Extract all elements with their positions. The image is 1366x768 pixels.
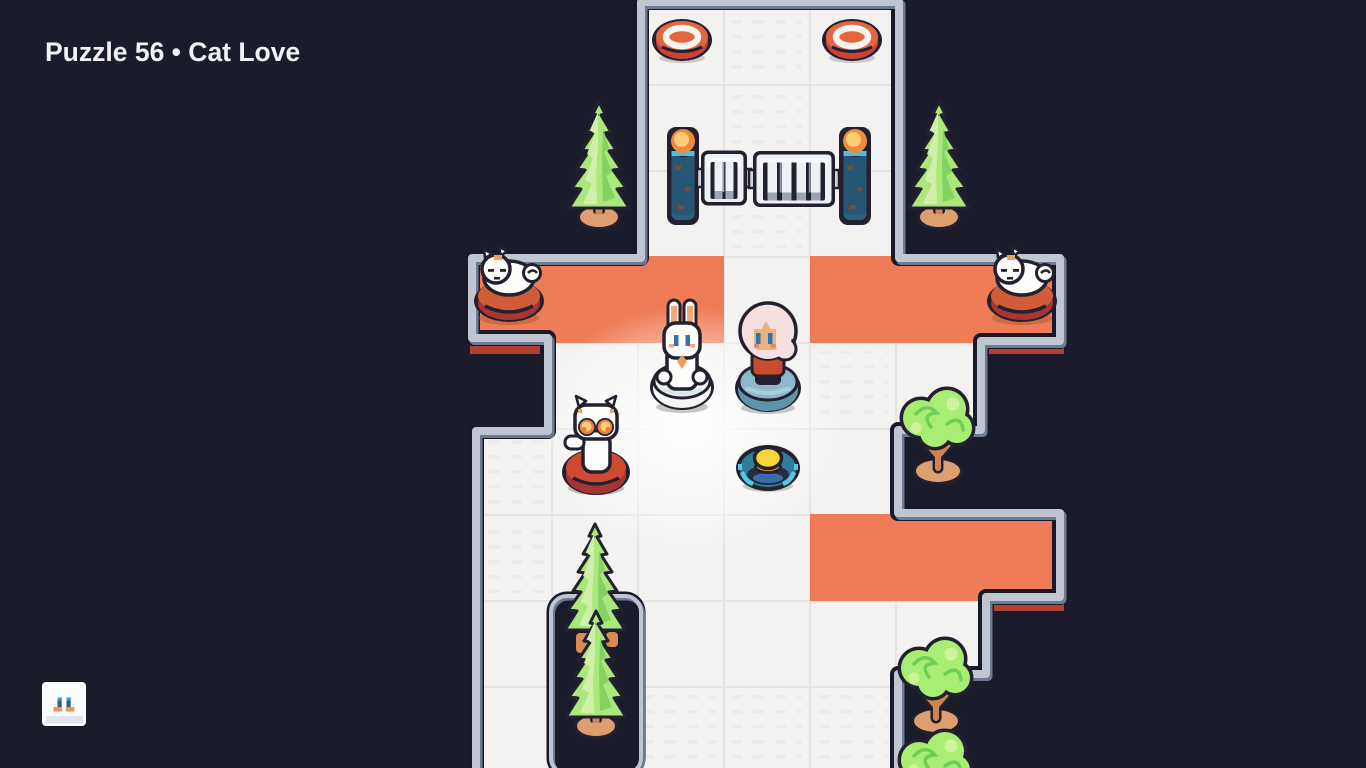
svg-text:Puzzle 56 • Cat Love: Puzzle 56 • Cat Love xyxy=(45,37,300,67)
